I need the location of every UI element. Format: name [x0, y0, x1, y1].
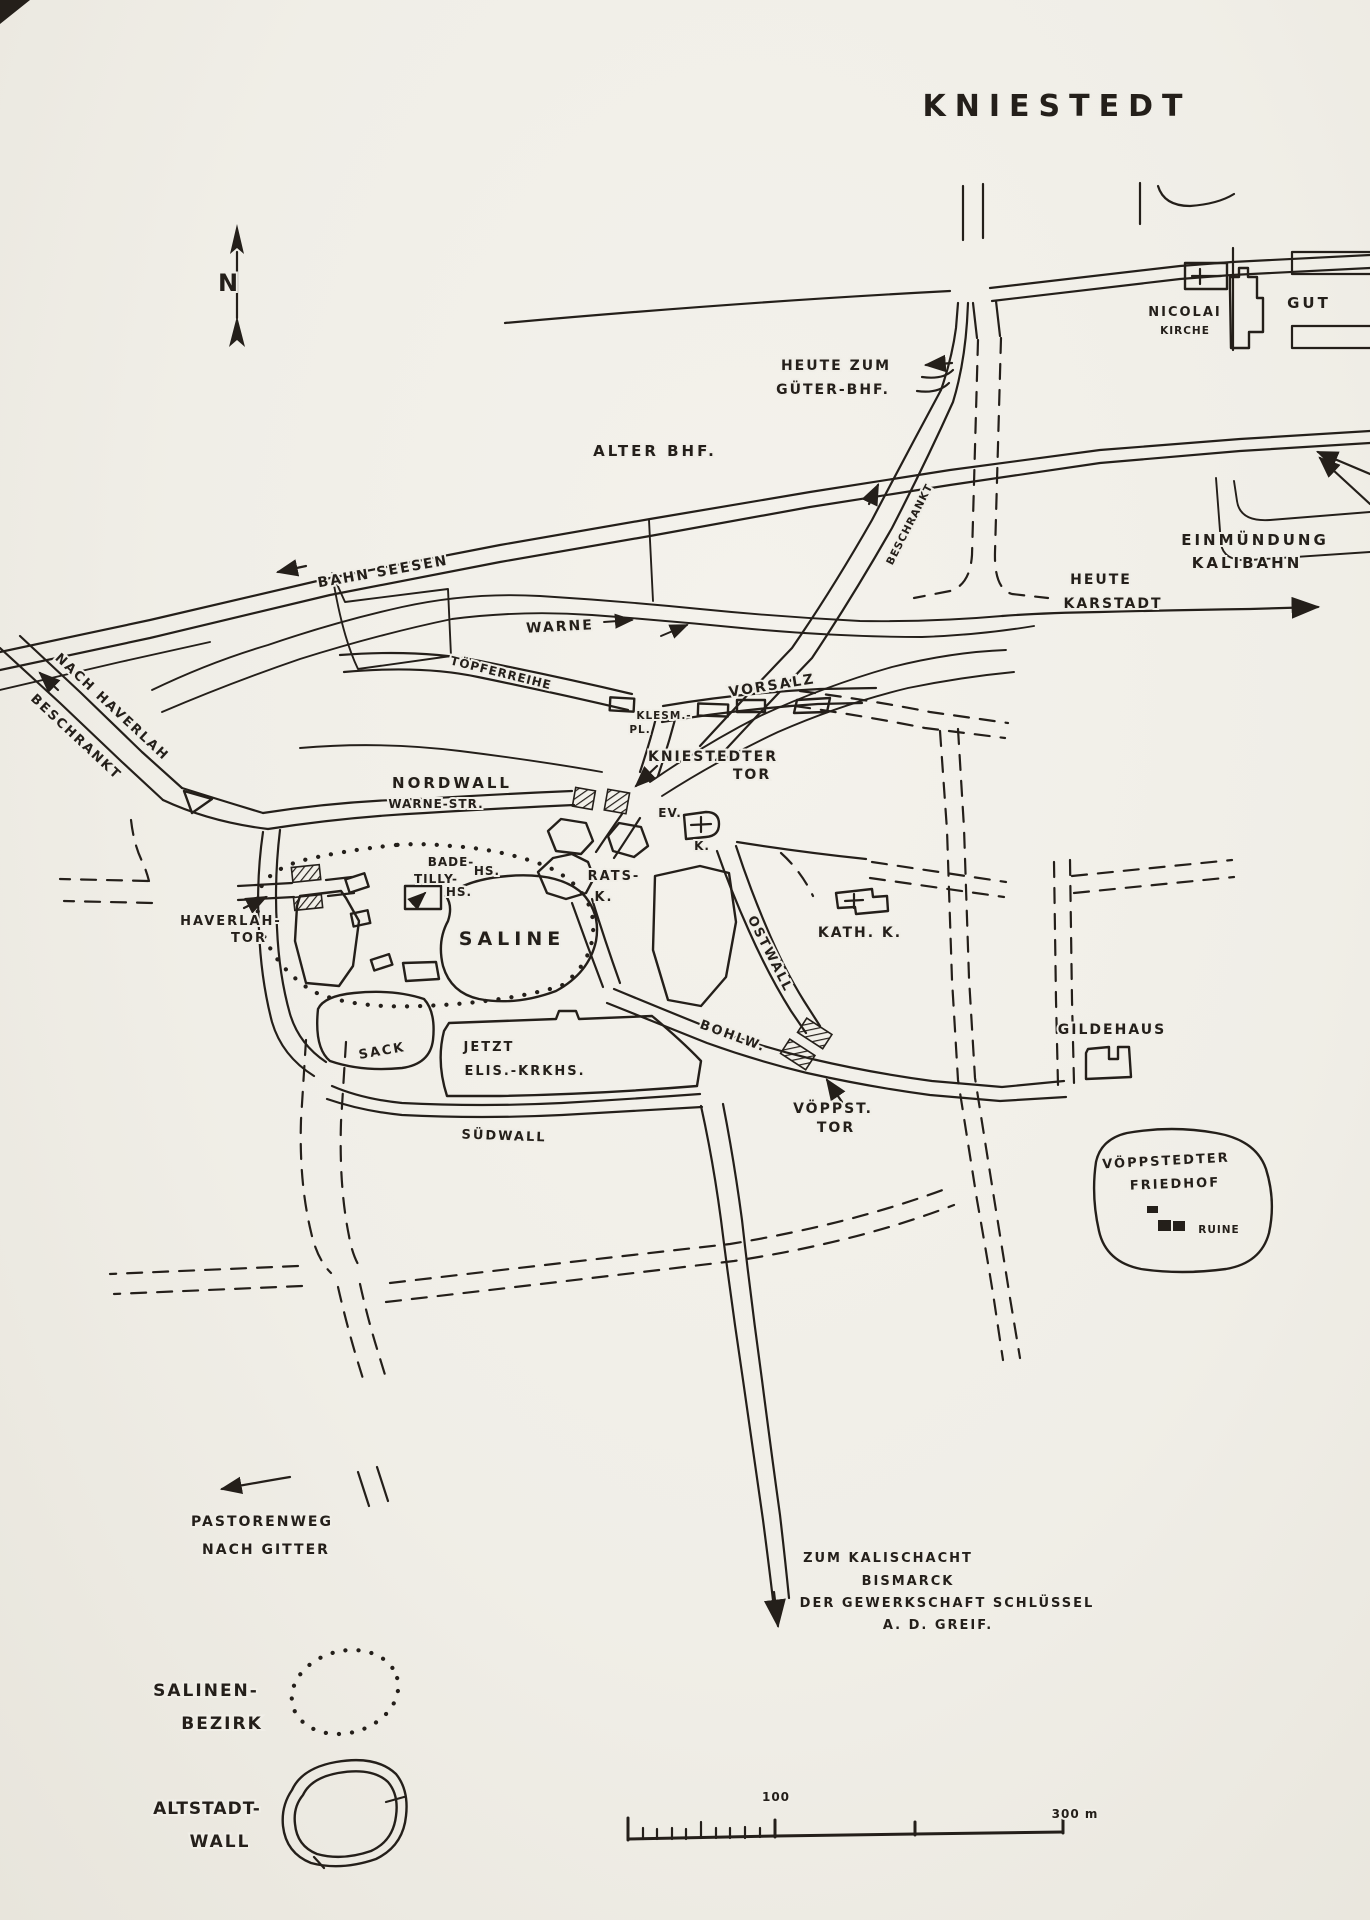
- label-warne-str: WARNE-STR.: [388, 797, 483, 811]
- label-ruine: RUINE: [1198, 1224, 1239, 1236]
- dashed-road: [110, 1266, 298, 1274]
- compass-feather: [229, 316, 245, 347]
- label-ev: EV.: [658, 806, 682, 820]
- legend-salinen-label-2: BEZIRK: [181, 1714, 263, 1734]
- church-cross-icon: [1192, 269, 1221, 284]
- ruine-block: [1147, 1206, 1158, 1213]
- road-line: [996, 301, 1000, 336]
- dashed-road: [1074, 877, 1234, 893]
- label-haverlah: HAVERLAH-: [180, 914, 282, 929]
- scale-label-300m: 300 m: [1052, 1807, 1099, 1821]
- meadow-arrow: [661, 625, 687, 636]
- ostwall-block: [653, 866, 736, 1006]
- kniestedter-tor-gate: [572, 787, 595, 809]
- pastorenweg-arrow: [222, 1477, 290, 1489]
- dashed-road: [870, 878, 1004, 897]
- label-tilly-hs: HS.: [446, 885, 472, 899]
- legend-altstadtwall-symbol-inner: [295, 1771, 397, 1857]
- label-kath-k: KATH. K.: [818, 925, 902, 941]
- label-bade: BADE-: [428, 855, 475, 869]
- church-cross-icon: [845, 894, 863, 908]
- ruine-block: [1158, 1220, 1171, 1231]
- label-nach-haverlah: NACH HAVERLAH: [52, 651, 172, 764]
- river-bank: [152, 595, 1002, 690]
- dashed-road: [1054, 862, 1058, 1085]
- map-labels: KNIESTEDT N NICOLAI KIRCHE GUT HEUTE ZUM…: [27, 89, 1331, 1852]
- label-friedhof-1: VÖPPSTEDTER: [1102, 1150, 1230, 1173]
- dashed-road: [60, 879, 148, 881]
- scale-bar: [628, 1816, 1063, 1840]
- label-ev-k: K.: [694, 839, 710, 853]
- dashed-road: [341, 1042, 363, 1272]
- kniestedter-tor-gate: [604, 789, 629, 814]
- label-klesm: KLESM.-: [636, 710, 691, 722]
- label-klesm-pl: PL.: [629, 724, 650, 736]
- river-bank: [162, 613, 1034, 712]
- friedhof-boundary: [1094, 1129, 1272, 1272]
- label-voeppst-tor: TOR: [817, 1120, 855, 1136]
- label-saline: SALINE: [459, 928, 565, 950]
- dashed-road: [1072, 860, 1232, 876]
- kniestedter-tor-arrow: [636, 766, 657, 786]
- label-kalischacht-2: BISMARCK: [862, 1574, 955, 1589]
- label-bohlw: BOHLW.: [698, 1018, 768, 1056]
- dashed-road: [914, 340, 978, 598]
- ostwall-street: [736, 846, 820, 1026]
- label-voeppst: VÖPPST.: [793, 1099, 873, 1117]
- label-friedhof-2: FRIEDHOF: [1130, 1175, 1221, 1193]
- voeppstedter-tor-gate: [798, 1018, 832, 1049]
- label-heute-zum: HEUTE ZUM: [781, 358, 891, 374]
- field-boundaries: [332, 478, 1370, 796]
- saline-building: [351, 910, 370, 926]
- field-divider: [649, 520, 653, 601]
- dashed-road: [114, 1286, 302, 1294]
- bohlweg-street: [614, 989, 1064, 1087]
- compass-north-arrowhead: [230, 224, 244, 254]
- label-kalibahn: KALIBAHN: [1192, 554, 1303, 572]
- label-tilly: TILLY-: [414, 872, 458, 886]
- rail-line: [0, 443, 1370, 670]
- label-karstadt: KARSTADT: [1063, 596, 1162, 612]
- gut-building: [1292, 326, 1370, 348]
- dashed-road: [360, 1284, 386, 1378]
- legend-altstadt-label-1: ALTSTADT-: [153, 1799, 261, 1819]
- rail-siding-line: [0, 642, 210, 690]
- label-gueter-bhf: GÜTER-BHF.: [776, 380, 890, 398]
- label-bade-hs: HS.: [474, 864, 500, 878]
- label-jetzt: JETZT: [463, 1040, 515, 1055]
- road-stub: [1158, 186, 1234, 206]
- dashed-road: [338, 1287, 364, 1382]
- road-direction-arrow: [869, 485, 878, 504]
- label-suedwall: SÜDWALL: [461, 1127, 547, 1146]
- label-kniestedter: KNIESTEDTER: [648, 749, 778, 765]
- dashed-road: [800, 691, 1008, 723]
- kalischacht-road: [723, 1104, 789, 1598]
- bade-haus-building: [405, 886, 441, 909]
- dashed-road: [301, 1040, 331, 1273]
- bade-haus-arrow: [413, 893, 425, 904]
- nordwall-stream: [300, 745, 602, 772]
- label-rats-k: K.: [594, 890, 613, 905]
- dashed-path: [781, 853, 813, 896]
- road-line: [973, 303, 977, 338]
- ruine-block: [1173, 1221, 1185, 1231]
- kalibahn-junction-arrow: [1320, 458, 1370, 504]
- map-canvas: KNIESTEDT N NICOLAI KIRCHE GUT HEUTE ZUM…: [0, 0, 1370, 1920]
- dashed-road: [940, 731, 1003, 1360]
- gildehaus-building: [1086, 1047, 1131, 1079]
- scan-corner-mark: [0, 0, 30, 24]
- dashed-road: [872, 862, 1006, 882]
- rail-direction-arrow: [278, 566, 306, 572]
- label-rats: RATS-: [588, 869, 641, 884]
- map-page: KNIESTEDT N NICOLAI KIRCHE GUT HEUTE ZUM…: [0, 0, 1370, 1920]
- railway-bahn-seesen: [0, 431, 1370, 690]
- rail-line: [0, 431, 1370, 652]
- label-nach-gitter: NACH GITTER: [202, 1542, 330, 1558]
- suedwall-street: [327, 1099, 702, 1117]
- scale-line: [628, 1832, 1063, 1839]
- label-haverlah-tor: TOR: [231, 931, 267, 946]
- road-line: [163, 800, 268, 829]
- legend-altstadt-label-2: WALL: [190, 1832, 251, 1852]
- saline-building: [403, 962, 439, 981]
- saline-building: [345, 873, 368, 892]
- label-nordwall: NORDWALL: [392, 774, 512, 792]
- label-einmuendung: EINMÜNDUNG: [1181, 530, 1329, 549]
- label-elis-krkhs: ELIS.-KRKHS.: [464, 1064, 585, 1079]
- haverlah-tor-gate: [291, 865, 320, 883]
- dashed-road: [64, 901, 152, 903]
- street-to-kath: [737, 842, 866, 859]
- road-stub: [917, 383, 949, 392]
- label-vorsalz: VORSALZ: [728, 671, 817, 700]
- warne-label-arrow: [604, 620, 632, 622]
- road-line: [182, 788, 263, 813]
- label-warne: WARNE: [526, 617, 594, 637]
- label-nicolai: NICOLAI: [1148, 305, 1222, 320]
- nicolai-gut-buildings: [1185, 248, 1370, 350]
- voeppstedter-friedhof: [1094, 1129, 1272, 1272]
- saline-building: [371, 954, 392, 970]
- legend-salinen-symbol: [282, 1638, 408, 1745]
- legend-symbols: [282, 1638, 408, 1868]
- field-outline: [1234, 481, 1370, 520]
- kath-kirche-building: [836, 889, 888, 914]
- kalischacht-arrow: [774, 1592, 778, 1626]
- dashed-road: [995, 338, 1048, 598]
- town-building: [608, 823, 648, 857]
- voeppstedter-tor-arrow: [827, 1080, 842, 1102]
- legend-salinen-label-1: SALINEN-: [153, 1681, 259, 1701]
- label-gut: GUT: [1287, 294, 1331, 312]
- label-gildehaus: GILDEHAUS: [1058, 1022, 1166, 1038]
- label-sack: SACK: [358, 1040, 407, 1063]
- road-stub: [922, 370, 953, 378]
- label-pastorenweg: PASTORENWEG: [191, 1514, 333, 1530]
- label-nicolai-kirche: KIRCHE: [1160, 325, 1210, 337]
- label-heute: HEUTE: [1070, 572, 1132, 588]
- label-kalischacht-3: DER GEWERKSCHAFT SCHLÜSSEL: [800, 1595, 1095, 1611]
- label-alter-bhf: ALTER BHF.: [593, 442, 717, 460]
- road-stub: [358, 1467, 388, 1506]
- dashed-road: [386, 1205, 954, 1302]
- voeppstedter-tor-gate: [781, 1039, 815, 1070]
- scale-label-100: 100: [762, 1790, 790, 1804]
- meadow-line: [662, 672, 1014, 796]
- legend-altstadtwall-symbol: [283, 1760, 407, 1866]
- nicolai-tower-building: [1230, 268, 1263, 348]
- church-cross-icon: [691, 817, 711, 832]
- page-title: KNIESTEDT: [923, 89, 1192, 124]
- road-line: [505, 291, 950, 323]
- dashed-road: [131, 820, 149, 881]
- compass-n-label: N: [218, 269, 240, 297]
- label-ostwall: OSTWALL: [744, 914, 795, 995]
- label-kalischacht-1: ZUM KALISCHACHT: [803, 1551, 973, 1566]
- label-kalischacht-4: A. D. GREIF.: [883, 1618, 993, 1633]
- label-kniestedter-tor: TOR: [733, 767, 771, 783]
- town-building: [548, 819, 593, 854]
